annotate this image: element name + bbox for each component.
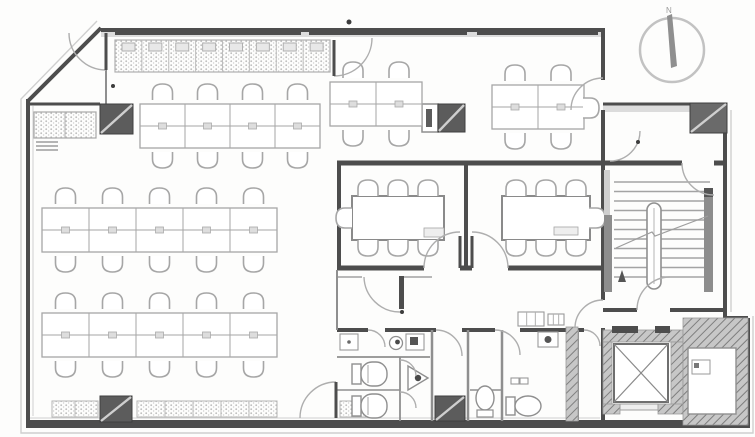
service-room [688, 348, 736, 414]
north-label: N [666, 6, 672, 15]
window-bench [115, 40, 330, 72]
north-compass: N [640, 6, 704, 82]
entry-cabinet [34, 112, 96, 150]
floor-plan-drawing: N [0, 0, 755, 437]
floor-plan-page: N [0, 0, 755, 437]
staircase [604, 170, 713, 292]
